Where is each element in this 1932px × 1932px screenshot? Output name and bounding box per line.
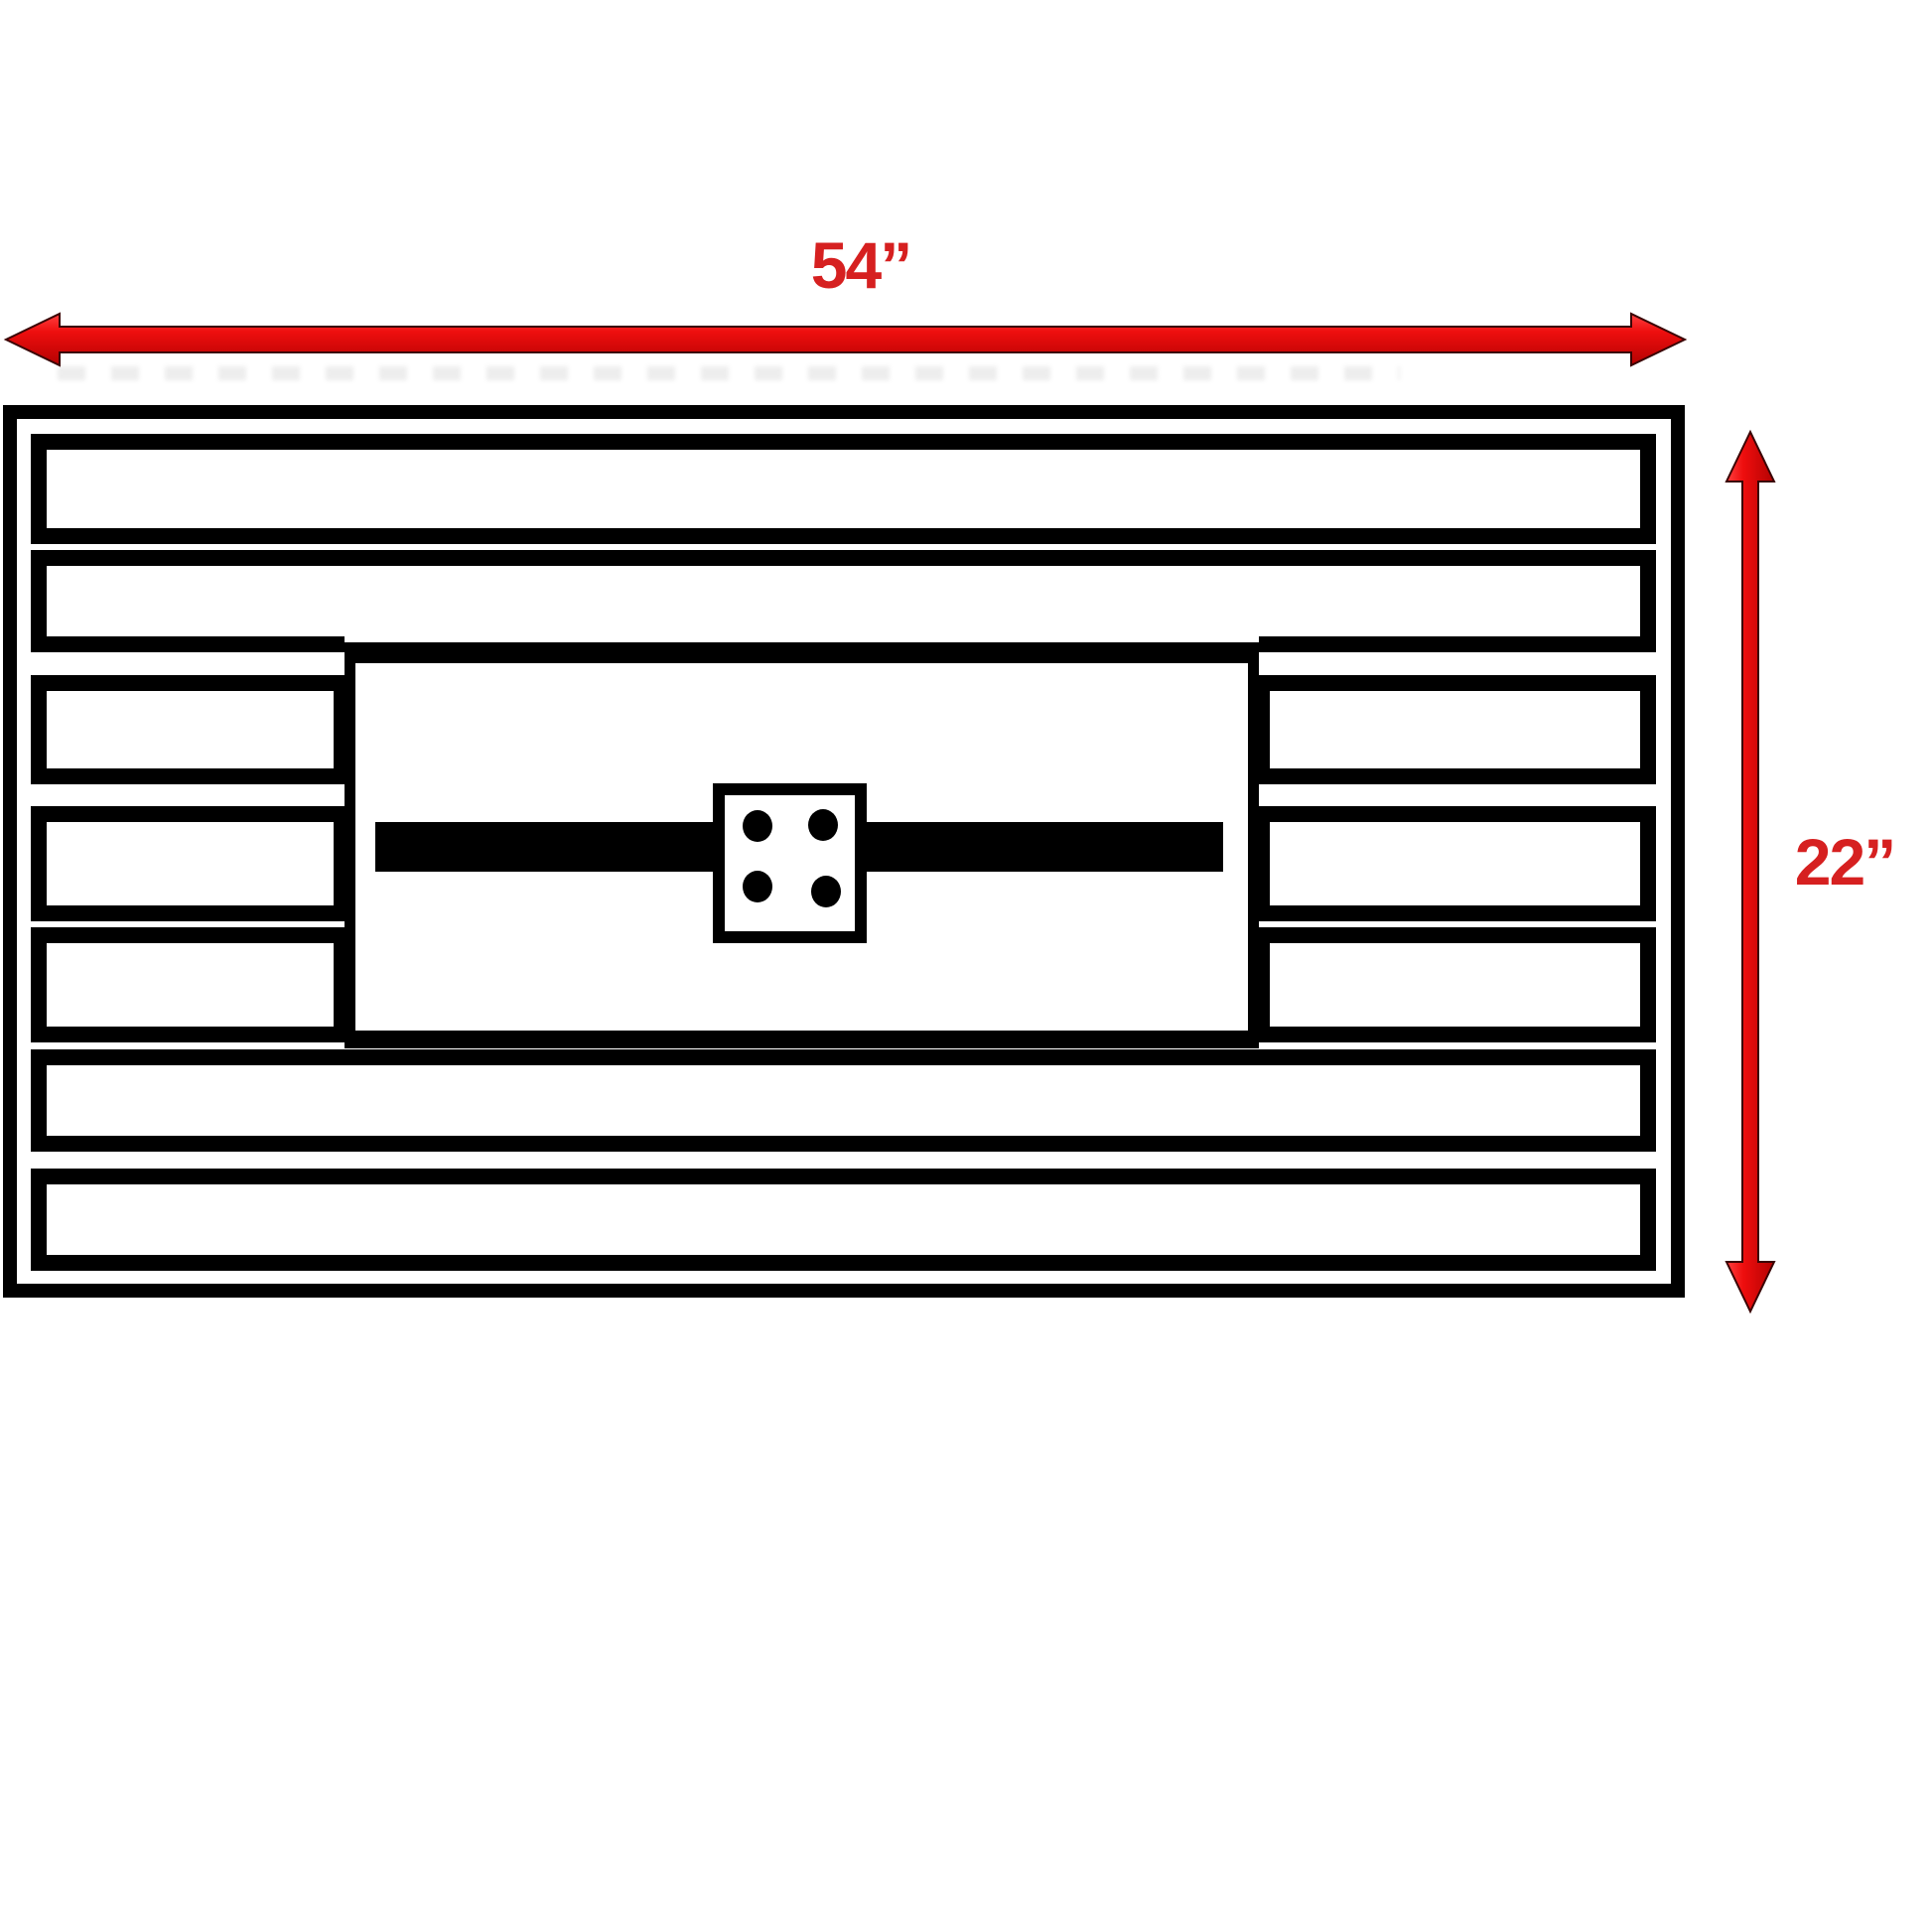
slat-row-5-left	[31, 927, 349, 1042]
slat-row-4-left	[31, 806, 349, 921]
slat-row-3-right	[1254, 675, 1656, 784]
bolt-dot-icon	[808, 809, 838, 841]
slat-row-3-left	[31, 675, 349, 784]
slat-row-7	[31, 1169, 1656, 1271]
ghost-text-artifact	[58, 366, 1400, 380]
slat-row-6	[31, 1049, 1656, 1152]
height-dimension-label: 22”	[1745, 829, 1932, 895]
mounting-plate	[713, 783, 867, 943]
bolt-dot-icon	[743, 810, 772, 842]
width-dimension-label: 54”	[761, 232, 960, 298]
burner-panel-bottom-border	[345, 1031, 1259, 1048]
bolt-dot-icon	[743, 871, 772, 902]
slat-row-5-right	[1254, 927, 1656, 1042]
width-dimension-arrow	[6, 314, 1685, 365]
burner-panel-left-border	[345, 642, 355, 1048]
burner-panel-right-border	[1248, 642, 1259, 1048]
burner-panel-top-bar	[345, 642, 1259, 663]
slat-row-1	[31, 434, 1656, 544]
slat-row-4-right	[1254, 806, 1656, 921]
bolt-dot-icon	[811, 876, 841, 907]
